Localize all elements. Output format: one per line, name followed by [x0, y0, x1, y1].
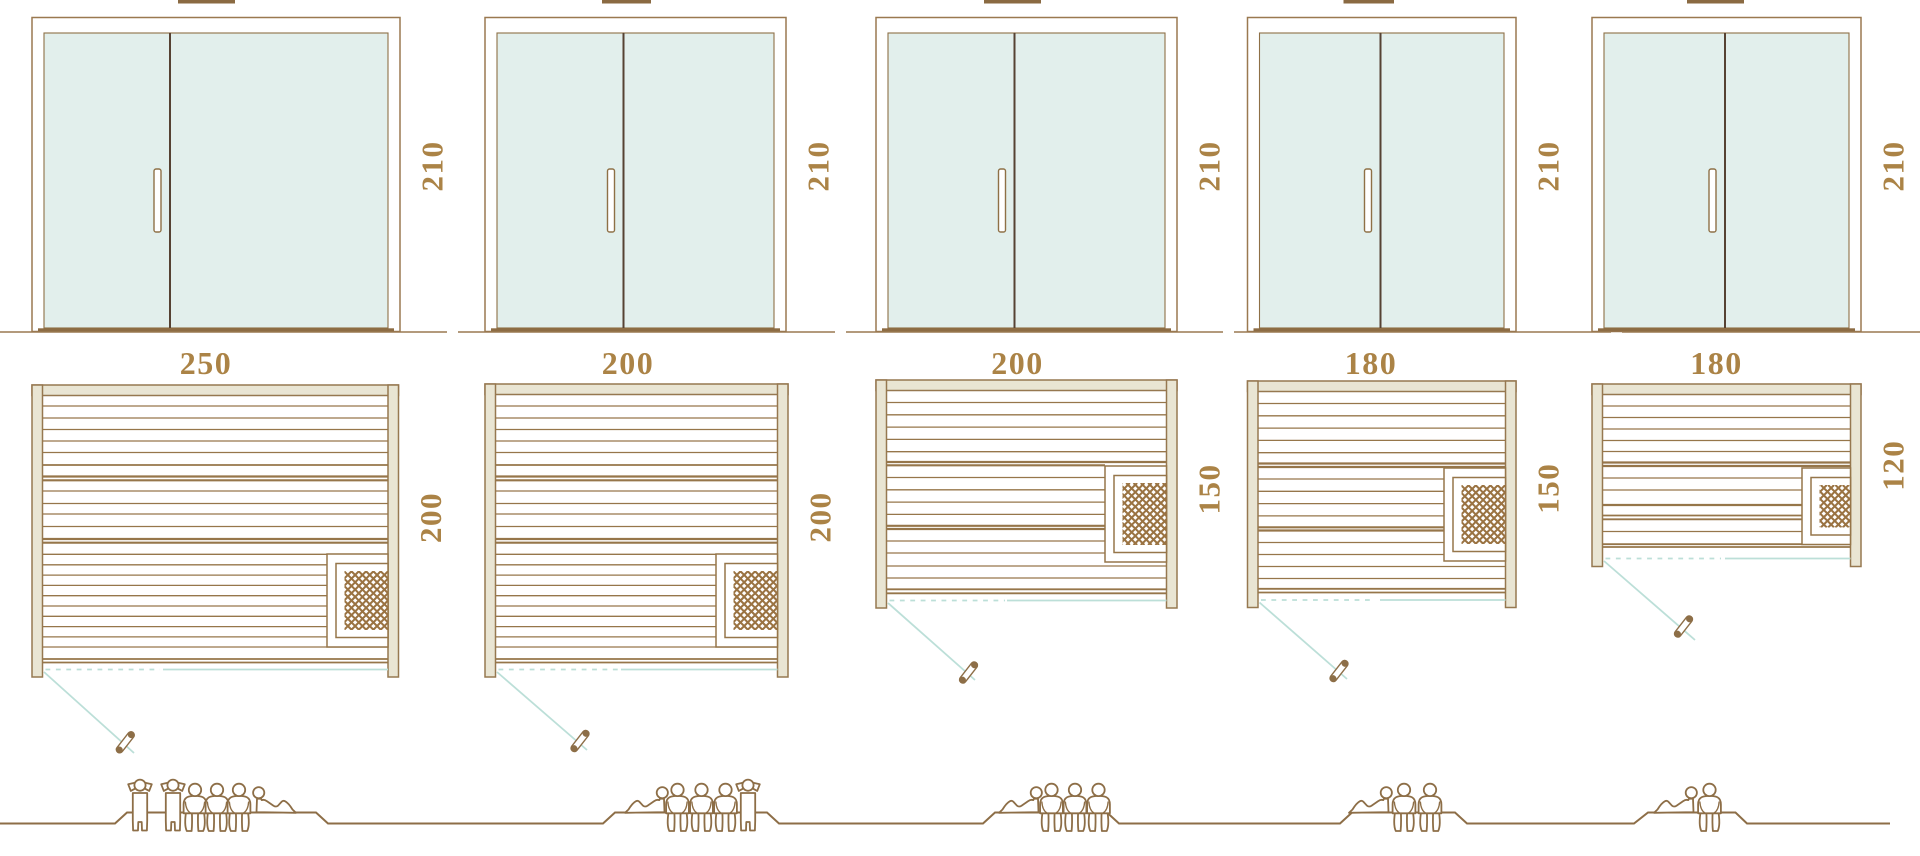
- svg-text:210: 210: [801, 141, 836, 192]
- svg-text:200: 200: [413, 492, 448, 543]
- svg-text:210: 210: [415, 141, 450, 192]
- svg-text:210: 210: [1531, 141, 1566, 192]
- svg-text:150: 150: [1191, 464, 1226, 515]
- svg-text:200: 200: [991, 345, 1044, 381]
- svg-text:150: 150: [1530, 463, 1565, 514]
- svg-text:120: 120: [1875, 440, 1910, 491]
- svg-text:180: 180: [1690, 345, 1743, 381]
- svg-text:210: 210: [1876, 141, 1911, 192]
- svg-text:250: 250: [180, 345, 233, 381]
- svg-text:180: 180: [1345, 345, 1398, 381]
- svg-text:200: 200: [802, 492, 837, 543]
- svg-text:200: 200: [602, 345, 655, 381]
- svg-text:210: 210: [1192, 141, 1227, 192]
